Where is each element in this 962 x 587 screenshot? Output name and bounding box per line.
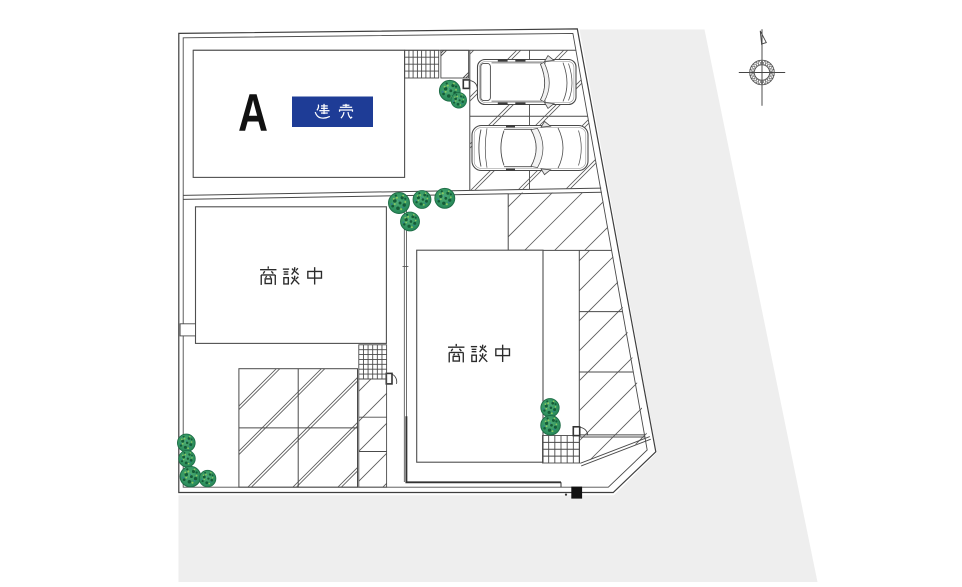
svg-text:A: A: [238, 84, 268, 143]
